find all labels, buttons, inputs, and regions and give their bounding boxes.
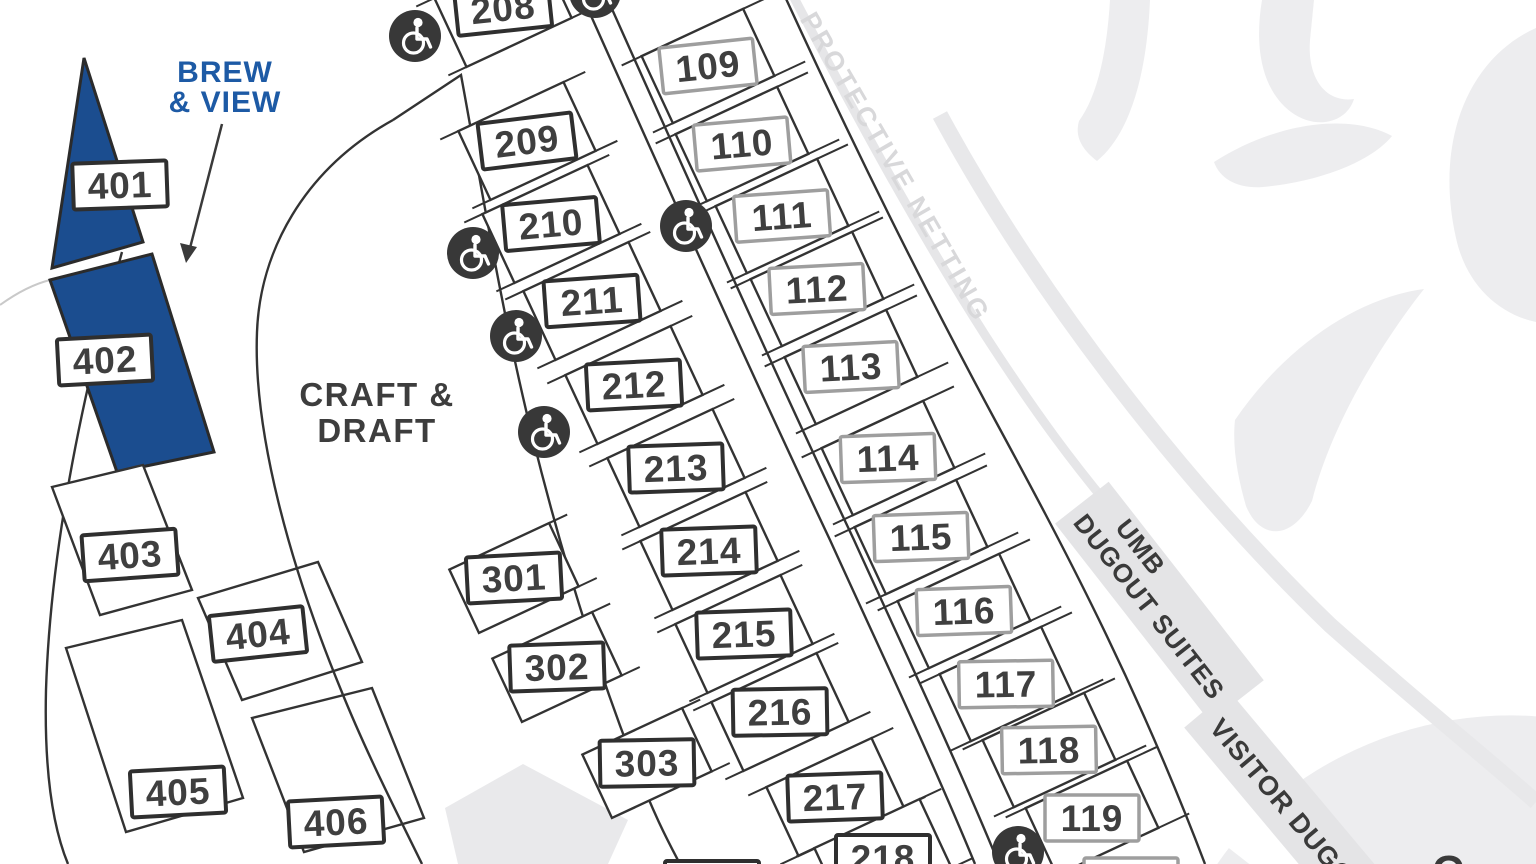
section-number: 301 [481, 556, 548, 600]
section-number: 406 [303, 800, 370, 844]
section-label-213[interactable]: 213 [628, 443, 724, 492]
section-label-119[interactable]: 119 [1045, 795, 1139, 841]
section-label-113[interactable]: 113 [803, 342, 899, 393]
partial-section-box-bottom-right[interactable] [1084, 858, 1178, 864]
section-number: 404 [224, 611, 293, 659]
section-label-303[interactable]: 303 [600, 739, 695, 787]
section-label-111[interactable]: 111 [734, 190, 831, 242]
section-number: 303 [614, 742, 679, 784]
section-label-403[interactable]: 403 [82, 529, 179, 581]
partial-right-edge-text: C [1432, 847, 1464, 864]
section-label-406[interactable]: 406 [288, 797, 384, 848]
section-label-302[interactable]: 302 [509, 642, 605, 691]
section-number: 216 [747, 691, 812, 733]
section-number: 403 [96, 533, 163, 578]
brew-and-view-label-line1: BREW [177, 56, 273, 89]
section-number: 209 [492, 117, 561, 166]
section-number: 114 [856, 437, 920, 480]
craft-and-draft-label-line1: CRAFT & [299, 376, 454, 413]
wheelchair-icon [389, 10, 441, 62]
section-label-216[interactable]: 216 [733, 688, 828, 736]
section-number: 217 [802, 776, 868, 819]
section-number: 116 [932, 590, 996, 633]
seating-map: PROTECTIVE NETTING UMB DUGOUT SUITES VIS… [0, 0, 1536, 864]
section-label-214[interactable]: 214 [661, 526, 757, 575]
section-number: 214 [676, 530, 742, 573]
section-label-217[interactable]: 217 [787, 772, 883, 821]
section-number: 215 [711, 613, 777, 656]
section-label-215[interactable]: 215 [696, 609, 792, 658]
section-label-118[interactable]: 118 [1002, 726, 1097, 774]
section-number: 213 [643, 447, 709, 490]
section-number: 109 [674, 43, 743, 91]
section-number: 113 [819, 345, 884, 389]
section-number: 302 [524, 646, 590, 689]
section-number: 117 [974, 663, 1037, 705]
wheelchair-icon [660, 200, 712, 252]
brew-and-view-label-line2: & VIEW [169, 86, 282, 119]
section-label-405[interactable]: 405 [130, 767, 226, 818]
wheelchair-icon [490, 310, 542, 362]
wheelchair-icon [447, 227, 499, 279]
craft-and-draft-label-line2: DRAFT [317, 412, 436, 449]
section-number: 218 [851, 838, 916, 864]
section-number: 119 [1061, 798, 1124, 839]
section-label-211[interactable]: 211 [544, 275, 641, 327]
section-number: 405 [145, 770, 212, 814]
section-label-114[interactable]: 114 [840, 433, 936, 482]
section-number: 112 [785, 267, 850, 311]
section-number: 118 [1017, 729, 1080, 771]
section-number: 211 [559, 279, 624, 324]
section-label-218[interactable]: 218 [836, 835, 930, 864]
section-number: 212 [601, 363, 668, 407]
section-label-117[interactable]: 117 [959, 660, 1054, 708]
section-label-402[interactable]: 402 [57, 335, 153, 386]
section-label-115[interactable]: 115 [873, 512, 969, 561]
section-number: 111 [750, 194, 813, 239]
section-label-209[interactable]: 209 [478, 112, 577, 169]
section-label-116[interactable]: 116 [916, 586, 1012, 635]
section-number: 401 [87, 164, 153, 207]
craft-and-draft-area: CRAFT & DRAFT [299, 376, 454, 449]
section-label-210[interactable]: 210 [502, 197, 600, 251]
section-label-301[interactable]: 301 [466, 553, 562, 604]
section-label-401[interactable]: 401 [72, 160, 168, 209]
section-label-404[interactable]: 404 [209, 606, 307, 662]
section-number: 210 [517, 201, 585, 247]
section-number: 115 [889, 516, 953, 559]
section-label-109[interactable]: 109 [659, 38, 757, 94]
section-label-212[interactable]: 212 [586, 360, 682, 411]
section-number: 110 [709, 121, 775, 167]
wheelchair-icon [518, 406, 570, 458]
section-label-110[interactable]: 110 [693, 117, 791, 171]
section-label-112[interactable]: 112 [769, 264, 865, 315]
section-number: 402 [72, 338, 139, 382]
